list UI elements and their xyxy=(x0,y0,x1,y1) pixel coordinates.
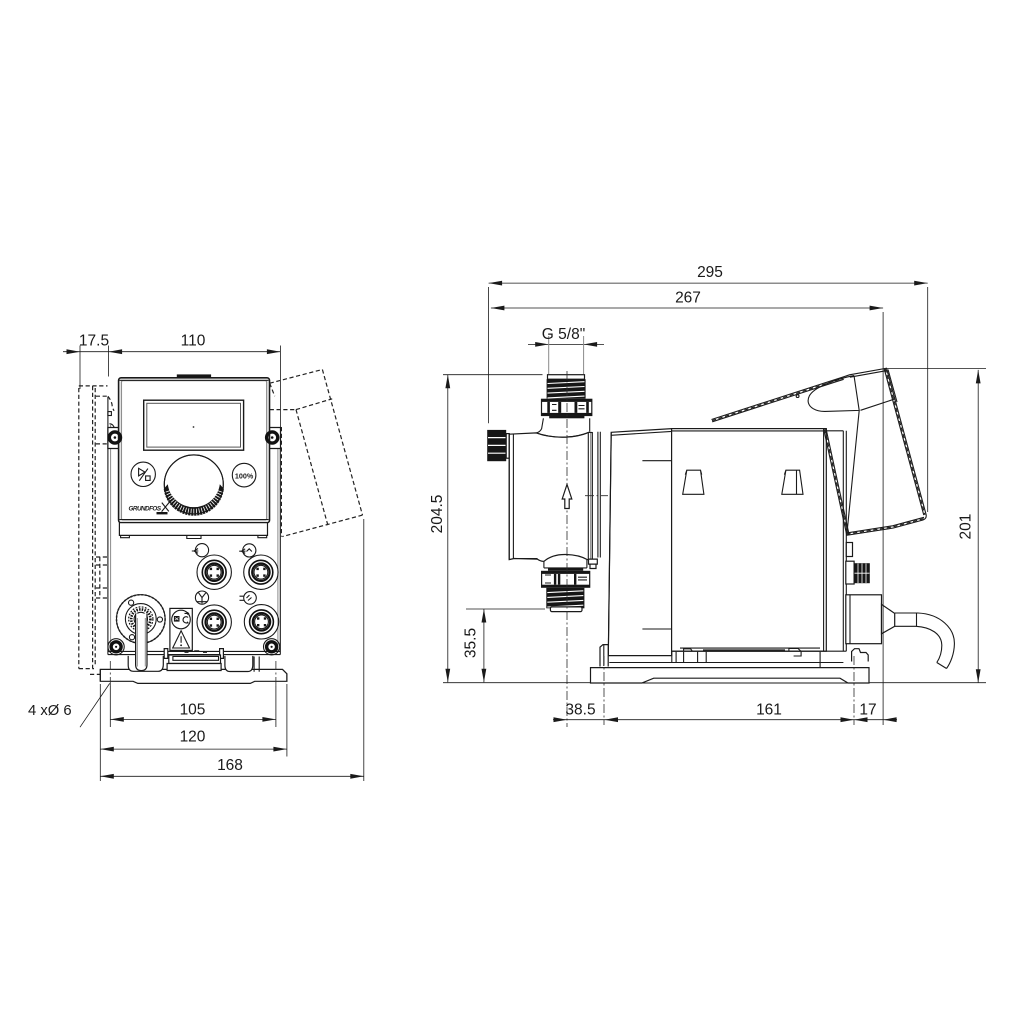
svg-text:17: 17 xyxy=(859,701,876,718)
svg-text:295: 295 xyxy=(697,264,723,281)
svg-text:35.5: 35.5 xyxy=(463,628,480,658)
svg-text:161: 161 xyxy=(756,701,782,718)
svg-text:38.5: 38.5 xyxy=(565,701,595,718)
svg-text:G 5/8": G 5/8" xyxy=(542,326,585,343)
svg-text:267: 267 xyxy=(675,289,701,306)
svg-text:204.5: 204.5 xyxy=(429,495,446,534)
svg-text:110: 110 xyxy=(181,332,206,349)
svg-text:168: 168 xyxy=(217,757,243,774)
svg-text:100%: 100% xyxy=(235,471,254,480)
svg-text:105: 105 xyxy=(180,701,206,718)
svg-text:201: 201 xyxy=(958,514,975,540)
svg-text:4 xØ 6: 4 xØ 6 xyxy=(28,703,72,719)
svg-text:120: 120 xyxy=(180,729,206,746)
svg-text:GRUNDFOS: GRUNDFOS xyxy=(129,505,162,512)
svg-text:17.5: 17.5 xyxy=(79,332,109,349)
